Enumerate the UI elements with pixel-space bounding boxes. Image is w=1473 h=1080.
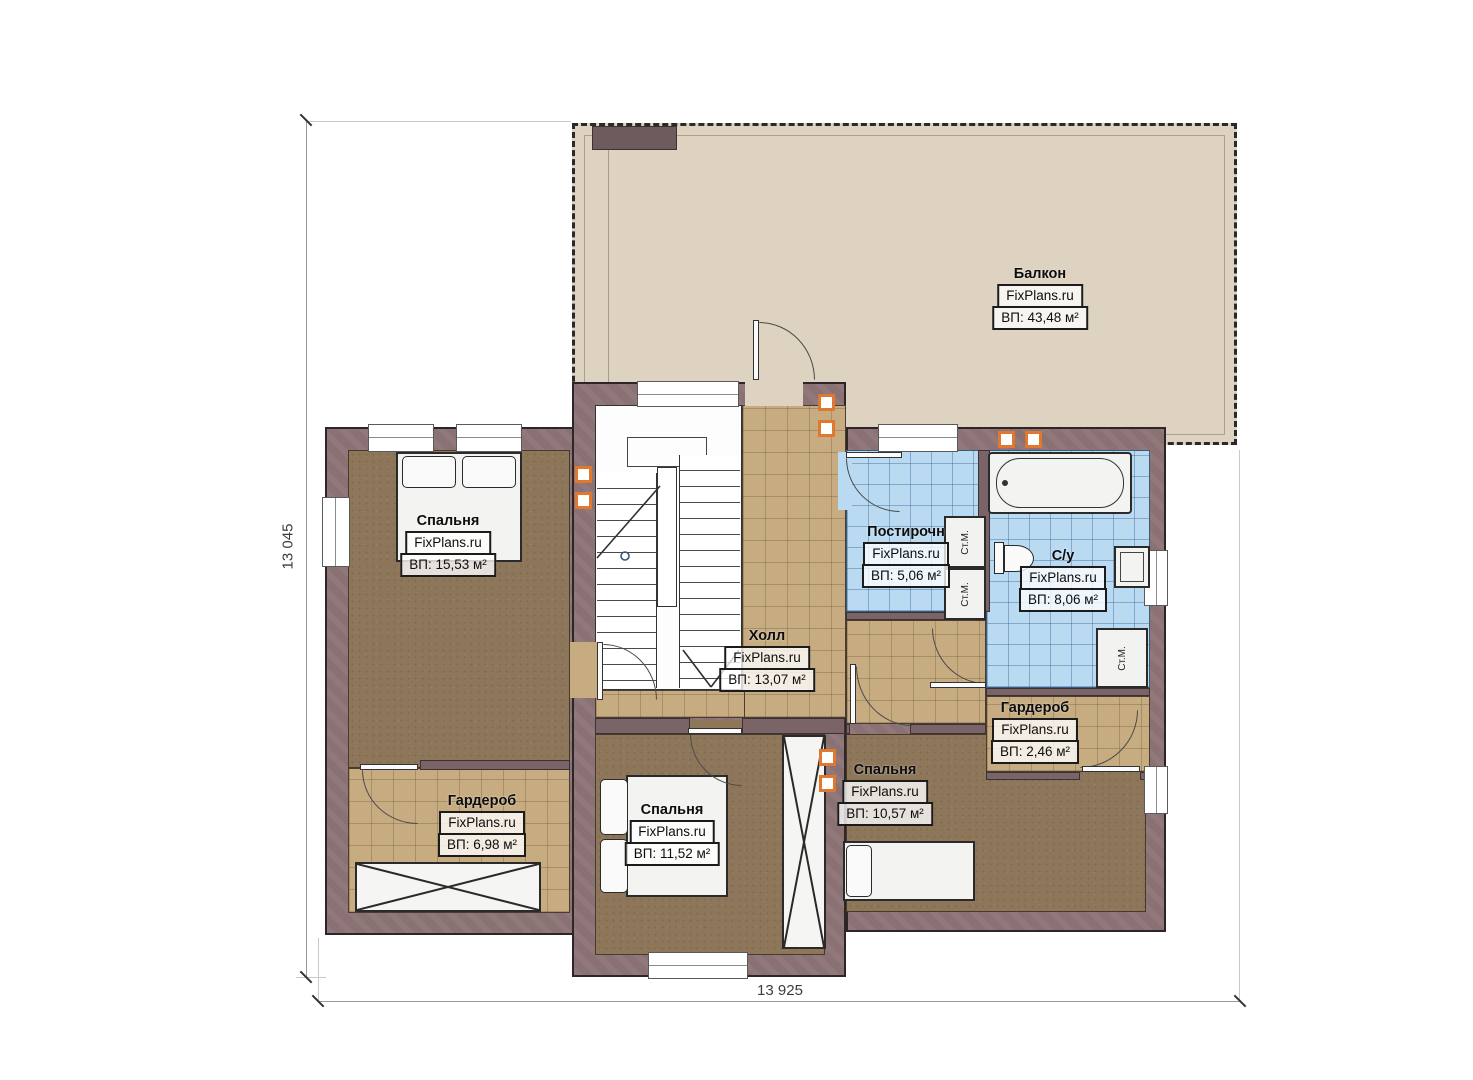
brand-box: FixPlans.ru <box>992 718 1078 742</box>
area-box: ВП: 11,52 м² <box>625 842 720 866</box>
door-leaf-balcony <box>753 320 759 380</box>
door-opening-balcony <box>745 378 803 406</box>
room-name: Постирочн <box>867 524 945 540</box>
wall-wardrobe-bedroom <box>986 772 1080 780</box>
dimension-extension <box>296 977 326 978</box>
washing-machine: Ст.М. <box>1096 628 1148 688</box>
washing-machine-label: Ст.М. <box>1117 646 1128 671</box>
door-leaf-bathroom <box>930 682 986 688</box>
window <box>456 424 522 452</box>
dimension-extension <box>318 938 319 1002</box>
washing-machine: Ст.М. <box>944 568 986 620</box>
room-name: С/у <box>1052 548 1075 564</box>
dimension-extension <box>307 121 571 122</box>
area-box: ВП: 10,57 м² <box>837 802 933 826</box>
wardrobe-cross-icon <box>784 737 824 947</box>
wall-bath-wardrobe <box>986 688 1150 696</box>
brand-box: FixPlans.ru <box>842 780 928 804</box>
room-label-hall: Холл FixPlans.ru ВП: 13,07 м² <box>719 628 815 692</box>
room-label-bedroom-right: Спальня FixPlans.ru ВП: 10,57 м² <box>837 762 933 826</box>
wardrobe-cross-icon <box>357 864 539 910</box>
window <box>878 424 958 452</box>
brand-box: FixPlans.ru <box>629 820 715 844</box>
room-name: Холл <box>749 628 785 644</box>
area-box: ВП: 8,06 м² <box>1019 588 1107 612</box>
brand-box: FixPlans.ru <box>405 531 491 555</box>
room-label-wardrobe-left: Гардероб FixPlans.ru ВП: 6,98 м² <box>438 793 526 857</box>
door-leaf-wardrobe-small <box>1082 766 1140 772</box>
vent-marker <box>819 775 836 792</box>
vent-marker <box>998 431 1015 448</box>
pillow <box>402 456 456 488</box>
room-label-balcony: Балкон FixPlans.ru ВП: 43,48 м² <box>992 266 1088 330</box>
dimension-label-vertical: 13 045 <box>280 511 297 583</box>
room-label-bathroom: С/у FixPlans.ru ВП: 8,06 м² <box>1019 548 1107 612</box>
brand-box: FixPlans.ru <box>863 542 949 566</box>
vent-marker <box>819 749 836 766</box>
wall-corridor-bedroom <box>910 724 986 734</box>
washing-machine: Ст.М. <box>944 516 986 568</box>
room-label-bedroom-center: Спальня FixPlans.ru ВП: 11,52 м² <box>625 802 720 866</box>
sink-basin <box>1120 552 1144 582</box>
balcony-wall-stub <box>592 126 677 150</box>
room-name: Балкон <box>1014 266 1066 282</box>
vent-marker <box>818 420 835 437</box>
window <box>322 497 350 567</box>
room-label-laundry: Постирочн FixPlans.ru ВП: 5,06 м² <box>862 524 950 588</box>
window <box>648 952 748 979</box>
pillow <box>846 845 872 897</box>
window <box>637 381 739 407</box>
brand-box: FixPlans.ru <box>439 811 525 835</box>
window <box>1144 766 1168 814</box>
wall-hall-bedroom-center <box>595 718 690 734</box>
floor-plan-canvas: 13 045 13 925 <box>0 0 1473 1080</box>
area-box: ВП: 6,98 м² <box>438 833 526 857</box>
room-label-wardrobe-small: Гардероб FixPlans.ru ВП: 2,46 м² <box>991 700 1079 764</box>
bathtub-faucet <box>1002 480 1008 486</box>
door-leaf-bedroom-left <box>597 642 603 700</box>
pillow <box>462 456 516 488</box>
dimension-line-horizontal <box>318 1001 1240 1002</box>
area-box: ВП: 15,53 м² <box>400 553 496 577</box>
vent-marker <box>575 492 592 509</box>
stair-center-stringer <box>657 467 677 607</box>
vent-marker <box>1025 431 1042 448</box>
washing-machine-label: Ст.М. <box>960 530 971 555</box>
door-leaf-bedroom-right <box>850 664 856 724</box>
room-name: Спальня <box>641 802 704 818</box>
dimension-extension <box>1239 450 1240 1002</box>
room-name: Гардероб <box>448 793 517 809</box>
washing-machine-label: Ст.М. <box>960 582 971 607</box>
vent-marker <box>818 394 835 411</box>
door-opening-bedroom-left <box>570 642 597 698</box>
toilet-tank <box>994 542 1004 574</box>
room-label-bedroom-left: Спальня FixPlans.ru ВП: 15,53 м² <box>400 513 496 577</box>
bathtub-inner <box>996 458 1124 508</box>
brand-box: FixPlans.ru <box>1020 566 1106 590</box>
area-box: ВП: 5,06 м² <box>862 564 950 588</box>
wardrobe-unit <box>355 862 541 912</box>
area-box: ВП: 2,46 м² <box>991 740 1079 764</box>
dimension-label-horizontal: 13 925 <box>744 982 816 999</box>
brand-box: FixPlans.ru <box>724 646 810 670</box>
dimension-line-vertical <box>306 120 307 978</box>
room-name: Спальня <box>417 513 480 529</box>
door-leaf-wardrobe-left <box>360 764 418 770</box>
wardrobe-unit <box>782 735 826 949</box>
vent-marker <box>575 466 592 483</box>
window <box>368 424 434 452</box>
room-name: Спальня <box>854 762 917 778</box>
wall-bedroom-wardrobe-left <box>420 760 570 770</box>
wall-corridor-bedroom <box>846 724 850 734</box>
area-box: ВП: 13,07 м² <box>719 668 815 692</box>
door-leaf-laundry <box>846 452 902 458</box>
door-leaf-bedroom-center <box>688 728 742 734</box>
brand-box: FixPlans.ru <box>997 284 1083 308</box>
area-box: ВП: 43,48 м² <box>992 306 1088 330</box>
wall-hall-bedroom-center <box>742 718 845 734</box>
room-name: Гардероб <box>1001 700 1070 716</box>
